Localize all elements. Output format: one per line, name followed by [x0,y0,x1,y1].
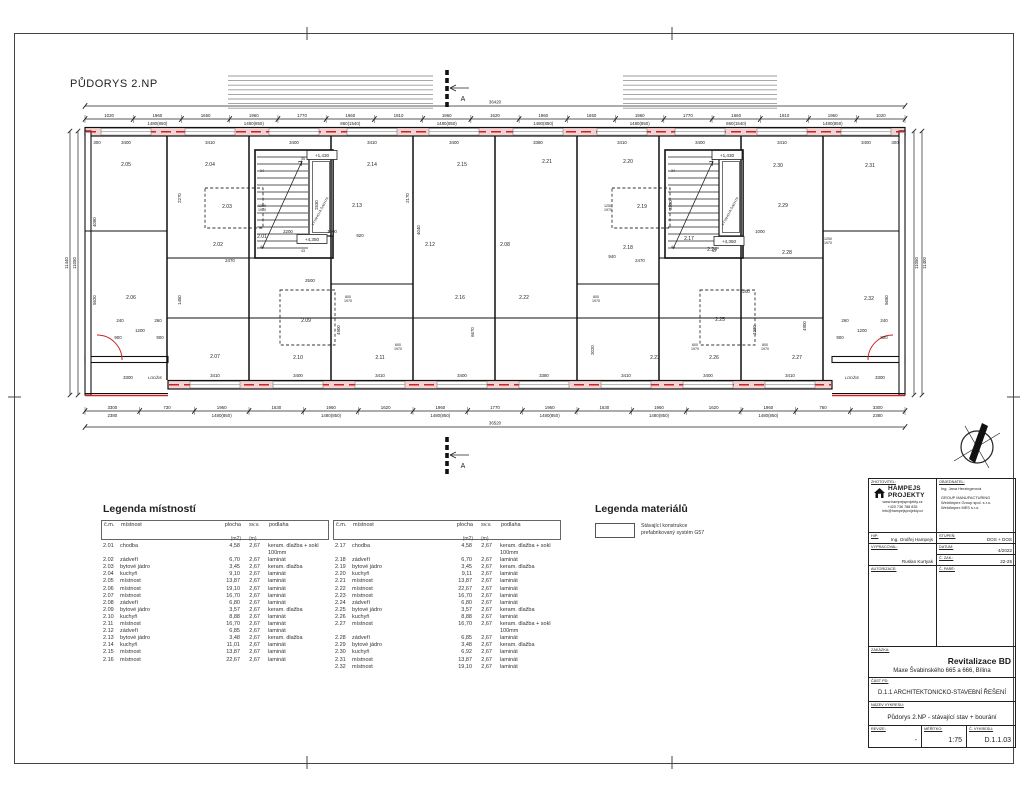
section-mark [445,102,449,107]
room-id: 2.12 [103,628,120,635]
dim-label: 1960 [435,405,445,410]
section-letter: A [461,463,466,470]
legend-room-row: 2.01chodba4,582,67keram. dlažba + sokl 1… [101,543,329,557]
dim-label: 4040 [416,225,421,235]
revize-value: - [869,731,921,744]
dim-label: 34 [671,169,675,173]
room-area: 8,88 [452,614,480,621]
drawing-title: PŮDORYS 2.NP [70,78,158,90]
room-height: 2,67 [480,557,500,564]
title-block: ZHOTOVITEL: HAMPEJS PROJEKTY www.hampejs… [868,478,1016,748]
scale-value: 1:75 [922,731,966,744]
room-height: 2,67 [480,571,500,578]
room-area: 8,88 [220,614,248,621]
generated-plan-annotations: 1020196016501960177016601810196016201960… [64,70,1000,474]
room-name: zádveří [120,600,220,607]
dim-label: 2270 [177,193,182,203]
room-area: 11,01 [220,642,248,649]
dim-label: 1000 [755,229,765,234]
room-name: kuchyň [120,642,220,649]
room-area: 6,85 [452,635,480,642]
dim-label: 1480(850) [147,121,168,126]
room-area: 3,45 [220,564,248,571]
room-number: 2.22 [519,295,529,301]
legend-room-row: 2.04kuchyň9,102,67laminát [101,571,329,578]
vypracoval-value: Ruslan Kurtyak [902,559,933,564]
legend-table-header: č.m. místnost plocha(m2) sv.v.(m) podlah… [333,520,561,540]
loggia-label: LODŽIE [148,375,163,380]
dim-label: 1810 [780,113,790,118]
room-id: 2.29 [335,642,352,649]
room-floor: keram. dlažba [500,607,562,614]
room-height: 2,67 [248,642,268,649]
legend-room-row: 2.30kuchyň6,922,67laminát [333,649,561,656]
dim-label: 1480(850) [758,413,779,418]
company-logo: HAMPEJS PROJEKTY [873,486,936,499]
room-id: 2.07 [103,593,120,600]
dim-label: 1960 [217,405,227,410]
dim-label: 44 [260,245,264,249]
pare-cell: Č. PARÉ: [936,565,1015,646]
room-floor: keram. dlažba + sokl 100mm [500,621,562,635]
room-height: 2,67 [480,578,500,585]
room-id: 2.28 [335,635,352,642]
room-number: 2.20 [623,159,633,165]
dim-label: 1960 [763,405,773,410]
room-height: 2,67 [480,649,500,656]
room-area: 19,10 [220,586,248,593]
cast-pd-value: D.1.1 ARCHITEKTONICKO-STAVEBNÍ ŘEŠENÍ [869,683,1015,696]
dim-label: 2530 [314,200,319,210]
house-logo-icon [873,487,886,499]
room-height: 2,67 [248,593,268,600]
room-floor: laminát [500,657,562,664]
dim-label: 900 [836,335,844,340]
dim-label: 1770 [490,405,500,410]
room-name: bytové jádro [352,642,452,649]
room-height: 2,67 [480,642,500,649]
section-mark [445,445,449,450]
room-number: 2.08 [500,242,510,248]
room-area: 4,58 [452,543,480,557]
dim-label: 3410 [375,373,385,378]
room-number: 2.06 [126,295,136,301]
dim-label: 240 [116,318,124,323]
dim-label: 35 [301,157,305,161]
room-name: místnost [352,578,452,585]
room-id: 2.09 [103,607,120,614]
room-area: 13,87 [452,578,480,585]
dim-label: 1480(850) [630,121,651,126]
room-height: 2,67 [480,564,500,571]
room-id: 2.19 [335,564,352,571]
contractor-label: ZHOTOVITEL: [869,479,936,484]
overall-height-right: 11050 [914,257,919,269]
legend-room-row: 2.07místnost16,702,67laminát [101,593,329,600]
room-height: 2,67 [480,621,500,635]
room-number: 2.15 [457,162,467,168]
dim-label: 3400 [457,373,467,378]
room-area: 3,45 [452,564,480,571]
room-height: 2,67 [248,614,268,621]
dim-label: 3410 [205,140,215,145]
room-floor: laminát [268,578,330,585]
room-number: 2.32 [864,296,874,302]
dim-label: 1770 [297,113,307,118]
dim-label: 43 [712,249,716,253]
room-id: 2.17 [335,543,352,557]
material-swatch [595,523,635,538]
room-area: 16,70 [220,593,248,600]
room-floor: laminát [500,664,562,671]
room-number: 2.29 [778,203,788,209]
dim-label: 1660 [731,113,741,118]
col-mistnost: místnost [121,522,221,543]
dim-label: 3410 [617,140,627,145]
room-area: 3,48 [452,642,480,649]
legend-room-row: 2.14kuchyň11,012,67laminát [101,642,329,649]
room-height: 2,67 [480,614,500,621]
room-id: 2.01 [103,543,120,557]
legend-room-row: 2.20kuchyň9,112,67laminát [333,571,561,578]
dim-label: 1960 [545,405,555,410]
room-id: 2.16 [103,657,120,664]
room-floor: laminát [500,593,562,600]
room-floor: laminát [268,557,330,564]
contractor-cell: ZHOTOVITEL: HAMPEJS PROJEKTY www.hampejs… [869,479,936,532]
dim-label: 3410 [777,140,787,145]
dim-label: 1960 [538,113,548,118]
dim-label: 43 [301,249,305,253]
dim-label: 920 [356,233,364,238]
legend-room-row: 2.28zádveří6,852,67laminát [333,635,561,642]
dim-label: 2380 [873,413,883,418]
dim-label: 1480(850) [533,121,554,126]
room-id: 2.23 [335,593,352,600]
legend-rooms-table-1: č.m. místnost plocha(m2) sv.v.(m) podlah… [101,520,329,664]
legend-rooms-title: Legenda místností [103,503,196,515]
room-floor: laminát [500,635,562,642]
dim-label: 1970 [592,299,600,303]
overall-height-left: 11440 [64,257,69,269]
room-area: 13,87 [220,649,248,656]
dim-label: 1630 [271,405,281,410]
room-number: 2.10 [293,355,303,361]
col-podlaha: podlaha [501,522,561,543]
room-name: místnost [120,586,220,593]
legend-room-row: 2.18zádveří6,702,67laminát [333,557,561,564]
room-name: bytové jádro [352,564,452,571]
room-id: 2.13 [103,635,120,642]
dim-label: 6670 [470,327,475,337]
dim-label: 3300 [123,375,133,380]
room-name: místnost [352,657,452,664]
room-area: 9,10 [220,571,248,578]
drawing-number: D.1.1.03 [967,731,1015,744]
room-id: 2.03 [103,564,120,571]
room-height: 2,67 [248,557,268,564]
room-area: 6,85 [220,628,248,635]
room-name: bytové jádro [120,564,220,571]
room-number: 2.28 [782,250,792,256]
legend-rooms-table-2: č.m. místnost plocha(m2) sv.v.(m) podlah… [333,520,561,671]
room-floor: laminát [268,600,330,607]
dim-label: 1960 [828,113,838,118]
stupen-cell: STUPEŇ: DOS + DOS [936,532,1015,543]
room-number: 2.31 [865,163,875,169]
dim-label: 3400 [861,140,871,145]
dim-label: 1970 [604,208,612,212]
dim-label: 860(1540) [726,121,747,126]
client-cell: OBJEDNATEL: Ing. Jana Herzingerová GROUP… [936,479,1015,532]
room-floor: laminát [268,586,330,593]
overall-width-bottom: 36520 [489,421,502,426]
level-marker: +4,350 [305,237,320,242]
room-floor: keram. dlažba [268,564,330,571]
room-height: 2,67 [480,657,500,664]
legend-table-header: č.m. místnost plocha(m2) sv.v.(m) podlah… [101,520,329,540]
room-id: 2.14 [103,642,120,649]
room-id: 2.32 [335,664,352,671]
dim-label: 3300 [873,405,883,410]
drawing-name: Půdorys 2.NP - stávající stav + bourání [869,707,1015,721]
col-mistnost: místnost [353,522,453,543]
col-cm: č.m. [336,522,353,543]
room-floor: keram. dlažba [268,607,330,614]
dim-label: 5620 [92,295,97,305]
dim-label: 260 [841,318,849,323]
room-name: zádveří [352,557,452,564]
level-marker: +1,430 [315,153,330,158]
section-mark [445,469,449,474]
room-floor: laminát [268,649,330,656]
dim-label: 3380 [539,373,549,378]
room-id: 2.04 [103,571,120,578]
autorizace-cell: AUTORIZACE: [869,565,936,646]
room-number: 2.11 [375,355,385,361]
dim-label: 3410 [367,140,377,145]
room-area: 16,70 [220,621,248,628]
dim-label: 1480(850) [649,413,670,418]
room-name: zádveří [120,557,220,564]
dim-label: 1480(850) [430,413,451,418]
room-area: 6,92 [452,649,480,656]
room-floor: laminát [500,578,562,585]
legend-room-row: 2.15místnost13,872,67laminát [101,649,329,656]
vypracoval-cell: VYPRACOVAL: Ruslan Kurtyak [869,543,936,565]
room-id: 2.20 [335,571,352,578]
room-height: 2,67 [248,607,268,614]
dim-label: 1450 [177,295,182,305]
legend-room-row: 2.05místnost13,872,67laminát [101,578,329,585]
dim-label: 3410 [210,373,220,378]
compass-needle [969,423,988,463]
room-floor: keram. dlažba + sokl 100mm [500,543,562,557]
room-floor: laminát [268,657,330,664]
room-id: 2.06 [103,586,120,593]
room-id: 2.05 [103,578,120,585]
room-floor: laminát [500,600,562,607]
dim-label: 900 [114,335,122,340]
legend-room-row: 2.17chodba4,582,67keram. dlažba + sokl 1… [333,543,561,557]
room-name: místnost [120,657,220,664]
room-area: 22,67 [220,657,248,664]
overall-height-left: 11050 [72,257,77,269]
room-name: zádveří [352,600,452,607]
legend-room-row: 2.09bytové jádro3,572,67keram. dlažba [101,607,329,614]
project-name: Revitalizace BD [869,652,1015,666]
dim-label: 2500 [305,278,315,283]
legend-room-row: 2.25bytové jádro3,572,67keram. dlažba [333,607,561,614]
room-id: 2.25 [335,607,352,614]
hip-value: Ing. Ondřej Hampejs [891,537,933,542]
room-number: 2.21 [542,159,552,165]
zakazka-cell: ZAKÁZKA: Revitalizace BD Maxe Švabinskéh… [869,646,1015,677]
room-number: 2.26 [709,355,719,361]
room-number: 2.01 [257,234,267,240]
room-area: 6,80 [220,600,248,607]
section-mark [445,437,449,442]
dim-label: 1970 [691,347,699,351]
dim-label: 1480(850) [823,121,844,126]
room-floor: laminát [500,557,562,564]
room-id: 2.18 [335,557,352,564]
room-name: kuchyň [352,614,452,621]
section-mark [445,453,449,458]
room-id: 2.22 [335,586,352,593]
room-number: 2.19 [637,204,647,210]
cast-pd-cell: ČÁST PD: D.1.1 ARCHITEKTONICKO-STAVEBNÍ … [869,677,1015,701]
dim-label: 1620 [381,405,391,410]
room-height: 2,67 [248,657,268,664]
dim-label: 300 [891,140,899,145]
company-contact: www.hampejsprojekty.cz +420 736 788 835 … [869,500,936,514]
legend-room-row: 2.02zádveří6,702,67laminát [101,557,329,564]
room-number: 2.04 [205,162,215,168]
hip-cell: HIP: Ing. Ondřej Hampejs [869,532,936,543]
dim-label: 5650 [884,295,889,305]
room-height: 2,67 [248,543,268,557]
dim-label: 1020 [876,113,886,118]
room-number: 2.12 [425,242,435,248]
legend-room-row: 2.29bytové jádro3,482,67keram. dlažba [333,642,561,649]
legend-room-row: 2.10kuchyň8,882,67laminát [101,614,329,621]
revize-cell: REVIZE: - [869,725,921,747]
section-mark [445,94,449,99]
dim-label: 2380 [107,413,117,418]
room-area: 13,87 [452,657,480,664]
room-name: bytové jádro [120,607,220,614]
room-number: 2.17 [684,236,694,242]
legend-room-row: 2.21místnost13,872,67laminát [333,578,561,585]
dim-label: 34 [260,169,264,173]
room-area: 16,70 [452,621,480,635]
room-name: chodba [120,543,220,557]
dim-label: 1630 [599,405,609,410]
room-name: místnost [352,593,452,600]
legend-room-row: 2.26kuchyň8,882,67laminát [333,614,561,621]
room-id: 2.24 [335,600,352,607]
dim-label: 1200 [857,328,867,333]
legend-room-row: 2.08zádveří6,802,67laminát [101,600,329,607]
legend-room-row: 2.32místnost19,102,67laminát [333,664,561,671]
section-mark [445,461,449,466]
room-number: 2.30 [773,163,783,169]
room-height: 2,67 [248,600,268,607]
level-marker: +1,430 [720,153,735,158]
cvykresu-cell: Č. VÝKRESU: D.1.1.03 [966,725,1015,747]
room-id: 2.11 [103,621,120,628]
overall-height-right: 11400 [922,257,927,269]
overall-width-top: 36420 [489,100,502,105]
room-name: místnost [120,649,220,656]
level-marker: +4,350 [722,239,737,244]
czak-cell: Č. ZAK.: 22-25 [936,554,1015,565]
dim-label: 300 [93,140,101,145]
room-height: 2,67 [248,628,268,635]
room-name: místnost [352,621,452,635]
room-height: 2,67 [248,571,268,578]
room-height: 2,67 [480,635,500,642]
dim-label: 730 [163,405,171,410]
room-name: zádveří [120,628,220,635]
room-name: chodba [352,543,452,557]
room-floor: laminát [500,614,562,621]
legend-room-row: 2.12zádveří6,852,67laminát [101,628,329,635]
room-floor: laminát [268,621,330,628]
dim-label: 3400 [293,373,303,378]
room-number: 2.07 [210,354,220,360]
dim-label: 1620 [709,405,719,410]
dim-label: 4900 [336,325,341,335]
room-height: 2,67 [248,586,268,593]
room-id: 2.02 [103,557,120,564]
loggia-label: LODŽIE [845,375,860,380]
room-name: bytové jádro [352,607,452,614]
room-number: 2.16 [455,295,465,301]
dim-label: 1970 [394,347,402,351]
czak-value: 22-25 [1000,559,1012,564]
room-area: 3,48 [220,635,248,642]
dim-label: 1480(850) [321,413,342,418]
dim-label: 1970 [761,347,769,351]
room-height: 2,67 [480,586,500,593]
room-id: 2.31 [335,657,352,664]
room-name: místnost [352,664,452,671]
room-height: 2,67 [248,578,268,585]
room-height: 2,67 [248,564,268,571]
dim-label: 1620 [490,113,500,118]
dim-label: 1020 [104,113,114,118]
room-name: kuchyň [352,649,452,656]
legend-room-row: 2.22místnost22,672,67laminát [333,586,561,593]
dim-label: 760 [819,405,827,410]
dim-label: 1960 [635,113,645,118]
dim-label: 1480(850) [212,413,233,418]
dim-label: 2170 [405,193,410,203]
dim-label: 2470 [635,258,645,263]
dim-label: 3410 [621,373,631,378]
room-area: 6,80 [452,600,480,607]
room-name: místnost [120,621,220,628]
room-floor: laminát [500,571,562,578]
room-floor: laminát [500,649,562,656]
dim-label: 3400 [289,140,299,145]
room-area: 22,67 [452,586,480,593]
room-area: 3,57 [220,607,248,614]
col-plocha: plocha(m2) [453,522,481,543]
room-area: 16,70 [452,593,480,600]
